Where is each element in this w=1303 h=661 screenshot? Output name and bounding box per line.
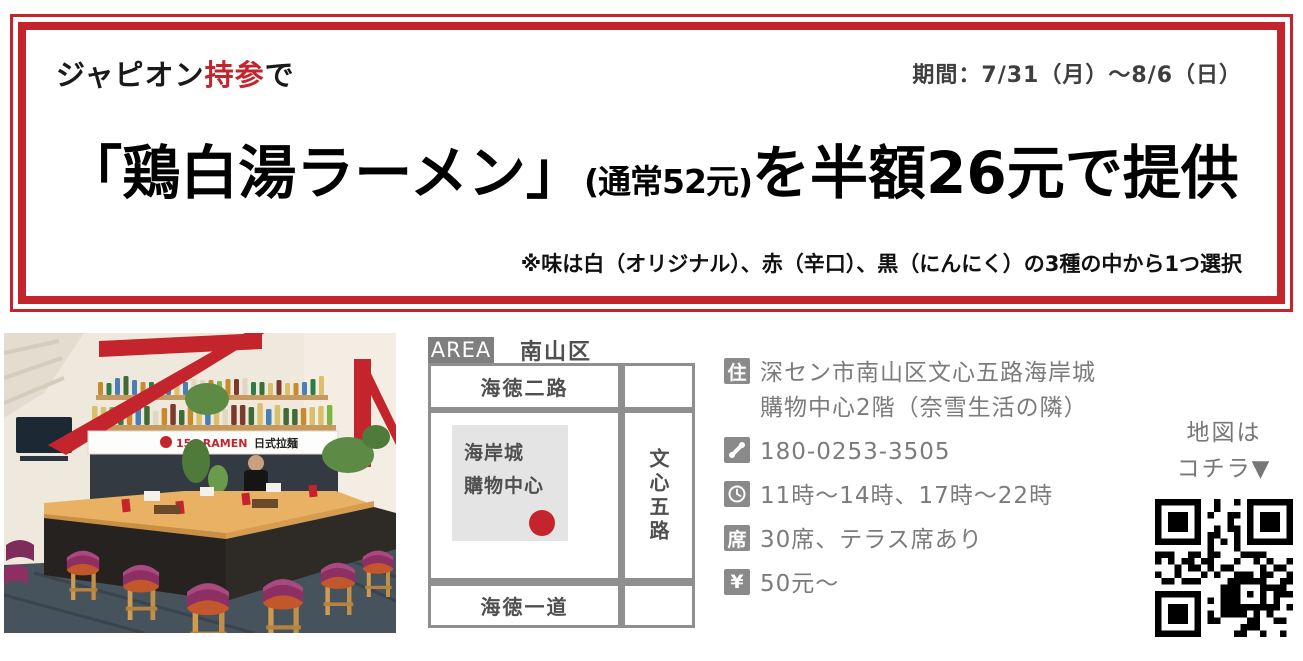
mall-name-line2: 購物中心 bbox=[464, 470, 568, 503]
price-icon: ¥ bbox=[724, 569, 750, 595]
banner-text-shop: 日式拉麺 bbox=[254, 436, 298, 450]
address-row: 住 深セン市南山区文心五路海岸城 購物中心2階（奈雪生活の隣） bbox=[724, 356, 1154, 426]
tagline-suffix: で bbox=[265, 58, 295, 92]
ad-page: ジャピオン持参で 期間：7/31（月）〜8/6（日） 「鶏白湯ラーメン」(通常5… bbox=[0, 0, 1303, 661]
street-label-top: 海徳二路 bbox=[431, 366, 618, 407]
offer-headline: 「鶏白湯ラーメン」(通常52元)を半額26元で提供 bbox=[26, 126, 1277, 210]
road-horizontal-bottom bbox=[431, 578, 692, 586]
shop-info: 住 深セン市南山区文心五路海岸城 購物中心2階（奈雪生活の隣） 180-0253… bbox=[724, 356, 1154, 611]
qr-label-line2: コチラ▼ bbox=[1148, 451, 1300, 487]
qr-label: 地図は コチラ▼ bbox=[1148, 415, 1300, 487]
mall-name-line1: 海岸城 bbox=[464, 437, 568, 470]
street-label-right: 文心五路 bbox=[625, 413, 692, 578]
phone-row: 180-0253-3505 bbox=[724, 435, 1154, 470]
opening-hours: 11時〜14時、17時〜22時 bbox=[760, 479, 1053, 514]
qr-column: 地図は コチラ▼ bbox=[1148, 415, 1300, 641]
headline-regular-price: (通常52元) bbox=[584, 162, 752, 201]
area-name: 南山区 bbox=[494, 337, 618, 363]
road-vertical bbox=[618, 366, 625, 625]
price-row: ¥ 50元〜 bbox=[724, 567, 1154, 602]
seats-text: 30席、テラス席あり bbox=[760, 523, 983, 558]
headline-product: 「鶏白湯ラーメン」 bbox=[64, 139, 584, 207]
address-icon: 住 bbox=[724, 358, 750, 384]
clock-icon bbox=[724, 481, 750, 507]
access-map: AREA 南山区 海徳二路 文心五路 海徳一道 海岸城 購物中心 bbox=[428, 337, 695, 628]
address-line1: 深セン市南山区文心五路海岸城 bbox=[760, 356, 1096, 391]
phone-receiver-icon bbox=[724, 437, 750, 463]
price-text: 50元〜 bbox=[760, 567, 839, 602]
coupon-box-inner: ジャピオン持参で 期間：7/31（月）〜8/6（日） 「鶏白湯ラーメン」(通常5… bbox=[18, 22, 1285, 304]
address-line2: 購物中心2階（奈雪生活の隣） bbox=[760, 391, 1096, 426]
map-header: AREA 南山区 bbox=[428, 337, 695, 363]
tagline: ジャピオン持参で bbox=[56, 52, 295, 94]
campaign-period: 期間：7/31（月）〜8/6（日） bbox=[912, 57, 1242, 89]
restaurant-photo: 156 RAMEN 日式拉麺 bbox=[4, 333, 396, 633]
tagline-highlight: 持参 bbox=[205, 58, 265, 92]
map-frame: 海徳二路 文心五路 海徳一道 海岸城 購物中心 bbox=[428, 363, 695, 628]
coupon-box: ジャピオン持参で 期間：7/31（月）〜8/6（日） 「鶏白湯ラーメン」(通常5… bbox=[10, 14, 1293, 312]
map-qr-code bbox=[1155, 499, 1293, 637]
area-chip: AREA bbox=[428, 337, 494, 363]
qr-label-line1: 地図は bbox=[1148, 415, 1300, 451]
seats-icon: 席 bbox=[724, 525, 750, 551]
headline-offer: を半額26元で提供 bbox=[752, 139, 1239, 207]
flavor-note: ※味は白（オリジナル）、赤（辛口）、黒（にんにく）の3種の中から1つ選択 bbox=[521, 248, 1242, 278]
location-dot bbox=[529, 510, 555, 536]
street-label-bottom: 海徳一道 bbox=[431, 586, 618, 625]
address-text: 深セン市南山区文心五路海岸城 購物中心2階（奈雪生活の隣） bbox=[760, 356, 1096, 426]
hours-row: 11時〜14時、17時〜22時 bbox=[724, 479, 1154, 514]
phone-number: 180-0253-3505 bbox=[760, 435, 951, 470]
seats-row: 席 30席、テラス席あり bbox=[724, 523, 1154, 558]
tagline-prefix: ジャピオン bbox=[56, 58, 205, 92]
